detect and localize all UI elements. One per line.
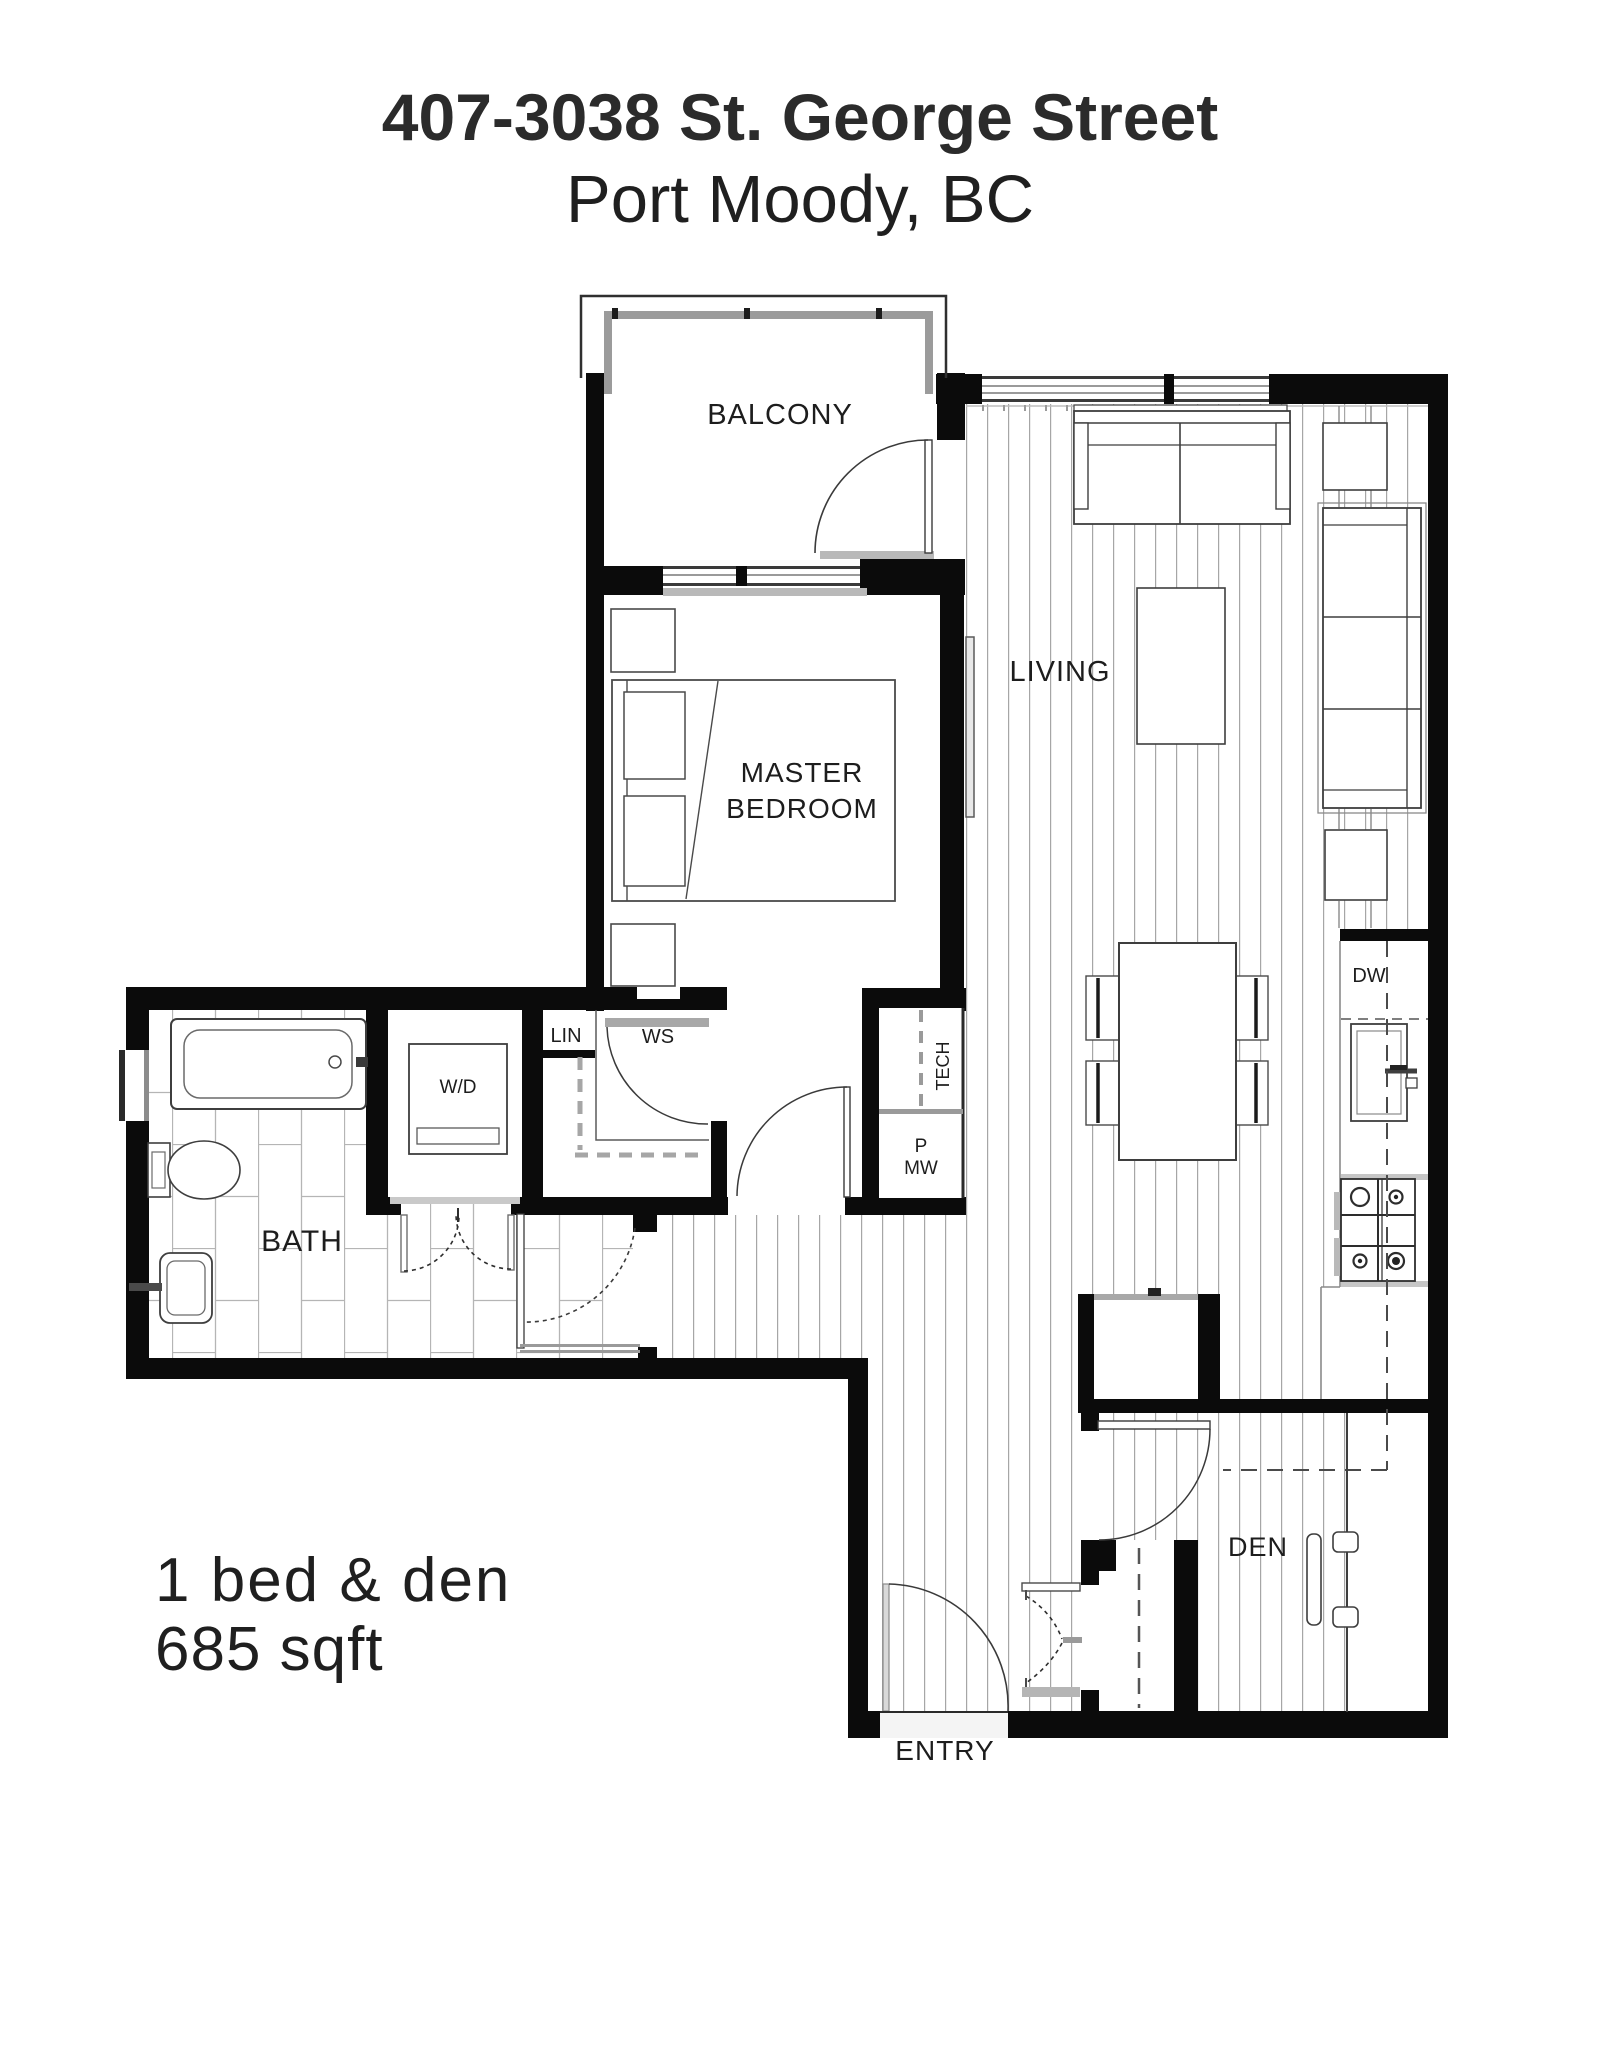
svg-text:DEN: DEN	[1228, 1532, 1288, 1562]
svg-text:BEDROOM: BEDROOM	[726, 793, 878, 824]
svg-text:DW: DW	[1352, 965, 1385, 987]
svg-text:407-3038 St. George Street: 407-3038 St. George Street	[382, 80, 1218, 154]
svg-text:MASTER: MASTER	[741, 757, 864, 788]
svg-text:WS: WS	[642, 1026, 674, 1048]
svg-text:W/D: W/D	[440, 1077, 477, 1098]
svg-text:BALCONY: BALCONY	[707, 399, 853, 431]
svg-text:Port Moody, BC: Port Moody, BC	[566, 162, 1034, 237]
svg-text:BATH: BATH	[261, 1225, 343, 1258]
svg-text:1 bed & den: 1 bed & den	[155, 1546, 511, 1615]
svg-text:685 sqft: 685 sqft	[155, 1615, 384, 1684]
svg-text:TECH: TECH	[933, 1042, 953, 1091]
svg-text:MW: MW	[904, 1158, 938, 1179]
svg-text:LIVING: LIVING	[1009, 656, 1110, 688]
svg-text:P: P	[915, 1136, 928, 1157]
svg-text:ENTRY: ENTRY	[895, 1735, 994, 1766]
svg-text:LIN: LIN	[550, 1025, 581, 1047]
